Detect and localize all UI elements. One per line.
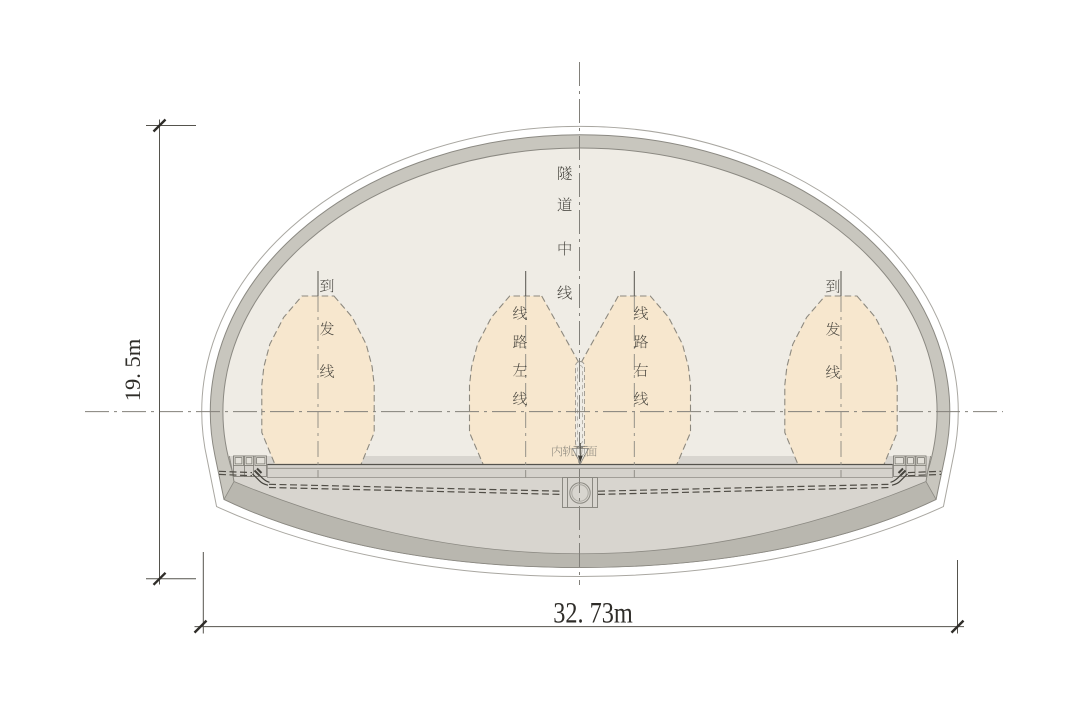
svg-text:32. 73m: 32. 73m: [553, 596, 633, 629]
svg-text:19. 5m: 19. 5m: [120, 338, 145, 401]
